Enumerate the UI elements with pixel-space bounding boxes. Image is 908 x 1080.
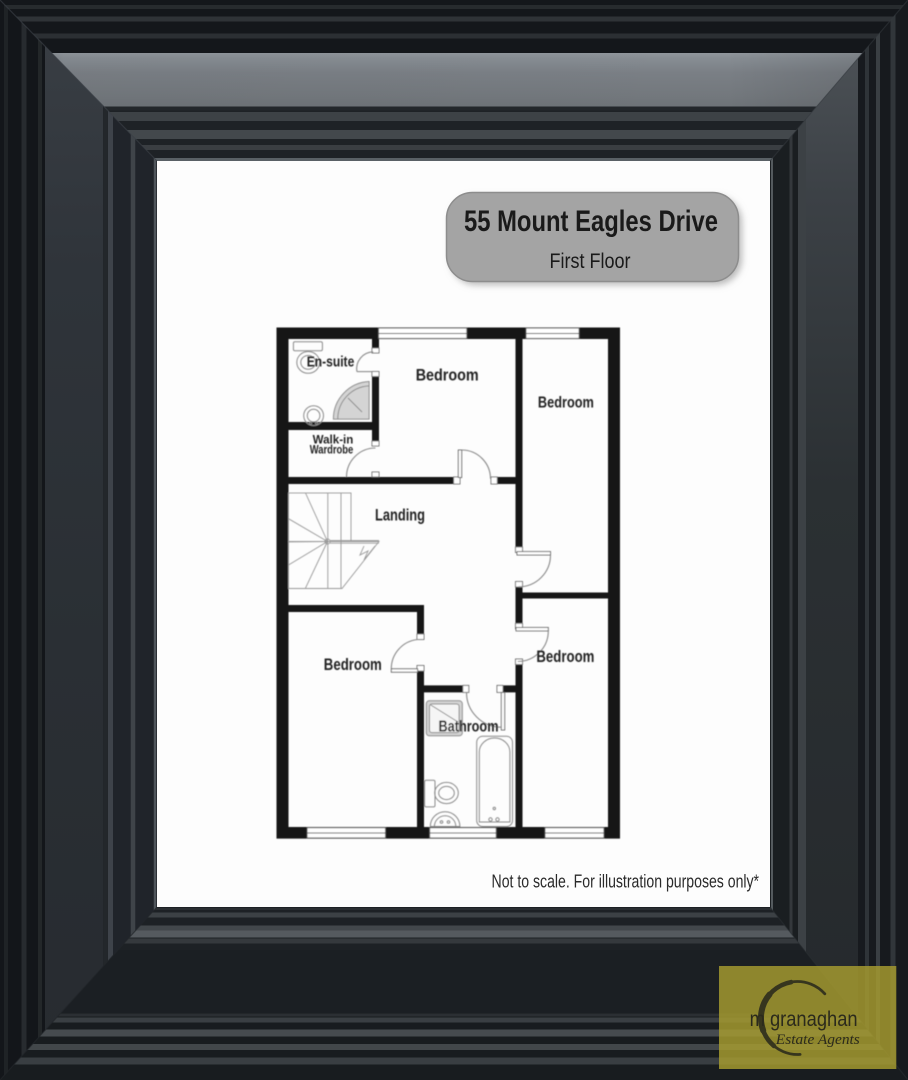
svg-text:Bedroom: Bedroom — [536, 648, 594, 666]
svg-text:Bathroom: Bathroom — [439, 718, 499, 735]
svg-text:Bedroom: Bedroom — [416, 367, 479, 385]
svg-text:Bedroom: Bedroom — [538, 395, 594, 412]
svg-text:55 Mount Eagles Drive: 55 Mount Eagles Drive — [464, 205, 718, 238]
svg-text:Estate Agents: Estate Agents — [775, 1032, 860, 1048]
svg-text:En-suite: En-suite — [307, 353, 355, 370]
svg-text:Bedroom: Bedroom — [324, 656, 382, 674]
svg-text:Wardrobe: Wardrobe — [310, 444, 354, 456]
svg-text:Not to scale. For illustration: Not to scale. For illustration purposes … — [492, 872, 760, 892]
svg-text:Landing: Landing — [375, 507, 425, 525]
svg-text:m granaghan: m granaghan — [750, 1008, 858, 1031]
svg-text:First Floor: First Floor — [550, 250, 631, 273]
